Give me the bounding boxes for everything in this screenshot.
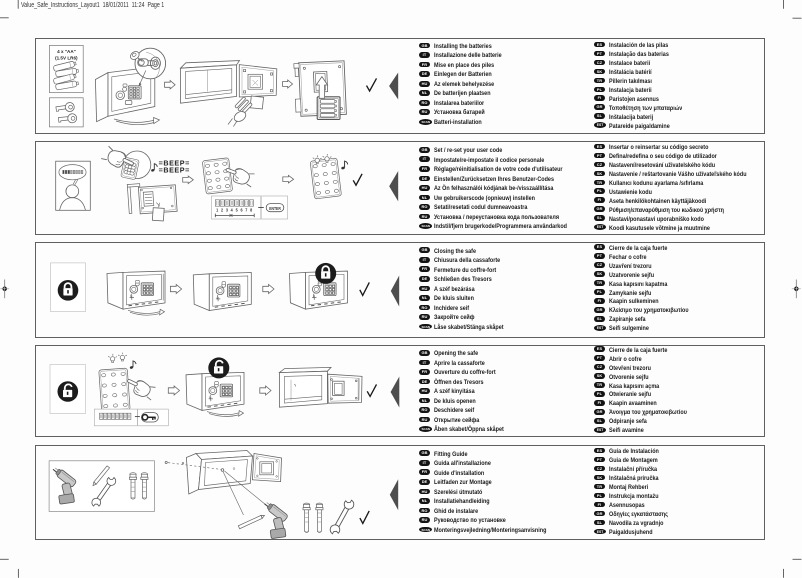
svg-text:=BEEP=: =BEEP=	[159, 166, 190, 175]
svg-text:4 x "AA": 4 x "AA"	[57, 49, 76, 54]
svg-text:ENTER: ENTER	[269, 206, 281, 212]
svg-text:(1.5V LR6): (1.5V LR6)	[55, 55, 78, 60]
